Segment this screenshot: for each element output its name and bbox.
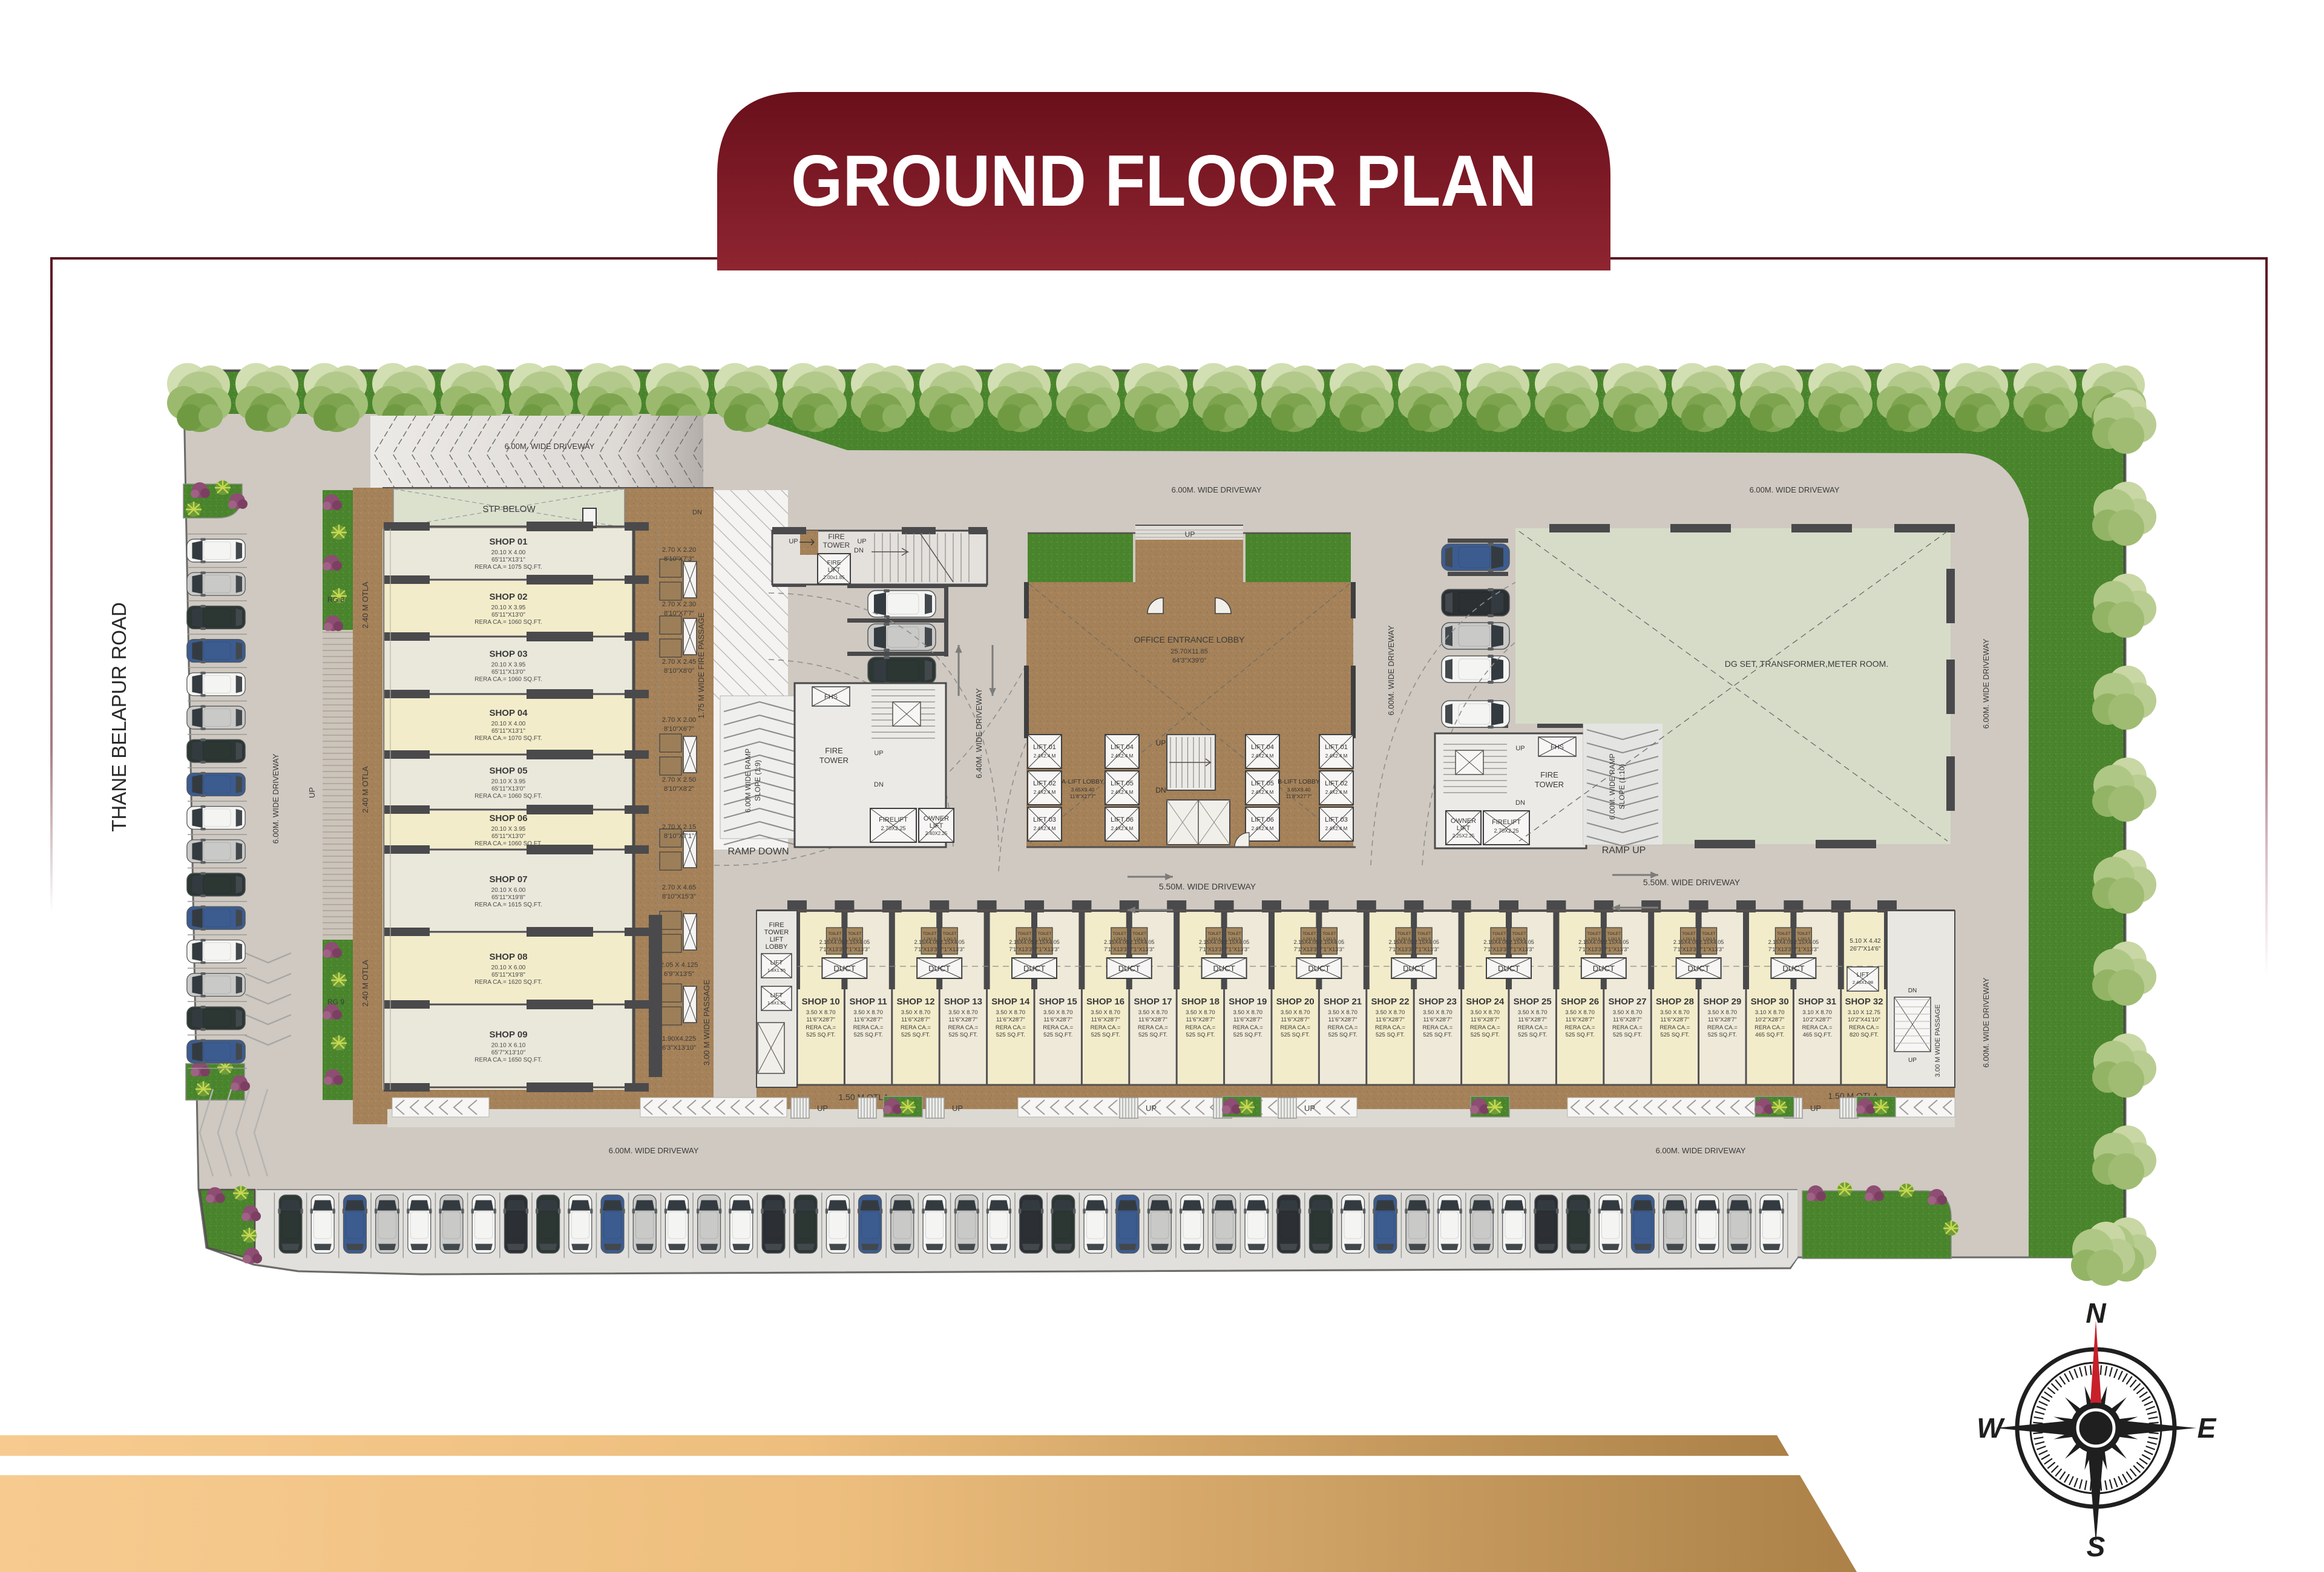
svg-text:3.10 X 8.70: 3.10 X 8.70 xyxy=(1802,1009,1832,1016)
svg-text:TOILET: TOILET xyxy=(1132,932,1146,936)
svg-text:6.00M. WIDE DRIVEWAY: 6.00M. WIDE DRIVEWAY xyxy=(271,753,280,843)
svg-text:LIFT: LIFT xyxy=(828,567,841,574)
svg-text:RERA CA.=: RERA CA.= xyxy=(1565,1024,1595,1031)
svg-text:525 SQ.FT.: 525 SQ.FT. xyxy=(1613,1032,1642,1038)
svg-text:LIFT 03: LIFT 03 xyxy=(1325,816,1348,824)
svg-text:11'6"X28'7": 11'6"X28'7" xyxy=(901,1017,930,1023)
svg-text:2.4X2.4 M: 2.4X2.4 M xyxy=(1111,753,1134,759)
svg-text:UP: UP xyxy=(1156,739,1166,747)
svg-text:2.15X4.05: 2.15X4.05 xyxy=(1794,939,1819,945)
svg-text:SHOP 15: SHOP 15 xyxy=(1039,997,1077,1007)
svg-text:RAMP DOWN: RAMP DOWN xyxy=(727,847,789,857)
svg-text:RERA CA.= 1070 SQ.FT.: RERA CA.= 1070 SQ.FT. xyxy=(474,735,542,742)
svg-text:TOWER: TOWER xyxy=(819,756,849,765)
svg-text:7'1"X13'3": 7'1"X13'3" xyxy=(1389,946,1414,952)
svg-text:LIFT: LIFT xyxy=(770,960,783,966)
svg-text:20.10 X 6.10: 20.10 X 6.10 xyxy=(491,1043,526,1049)
svg-text:TOWER: TOWER xyxy=(1535,780,1564,789)
svg-text:2.15X4.05: 2.15X4.05 xyxy=(1673,939,1698,945)
svg-text:3.50 X 8.70: 3.50 X 8.70 xyxy=(1281,1009,1310,1016)
svg-text:DUCT: DUCT xyxy=(1403,964,1425,973)
svg-text:6.00M. WIDE DRIVEWAY: 6.00M. WIDE DRIVEWAY xyxy=(609,1146,699,1155)
svg-text:SHOP 12: SHOP 12 xyxy=(896,997,934,1007)
svg-text:2.4X2.4 M: 2.4X2.4 M xyxy=(1325,753,1348,759)
svg-text:TOILET: TOILET xyxy=(923,932,937,936)
svg-text:11'6"X28'7": 11'6"X28'7" xyxy=(1376,1017,1405,1023)
svg-text:LIFT 06: LIFT 06 xyxy=(1251,816,1274,824)
svg-text:6.00M. WIDE DRIVEWAY: 6.00M. WIDE DRIVEWAY xyxy=(1387,625,1396,715)
svg-text:LIFT 02: LIFT 02 xyxy=(1325,780,1348,787)
svg-text:2.40 M OTLA: 2.40 M OTLA xyxy=(361,960,370,1007)
svg-text:525 SQ.FT.: 525 SQ.FT. xyxy=(901,1032,930,1038)
svg-text:6.00M. WIDE DRIVEWAY: 6.00M. WIDE DRIVEWAY xyxy=(1656,1146,1746,1155)
svg-text:TOILET: TOILET xyxy=(1682,932,1696,936)
svg-text:LOBBY: LOBBY xyxy=(766,943,788,951)
svg-text:LIFT 05: LIFT 05 xyxy=(1251,780,1274,787)
svg-text:11'6"X28'7": 11'6"X28'7" xyxy=(996,1017,1025,1023)
svg-text:8'10"X7'3": 8'10"X7'3" xyxy=(664,555,694,563)
svg-text:11'6"X28'7": 11'6"X28'7" xyxy=(806,1017,835,1023)
svg-text:2.15X4.05: 2.15X4.05 xyxy=(1035,939,1060,945)
svg-text:UP: UP xyxy=(1304,1104,1315,1113)
svg-text:2.15X4.05: 2.15X4.05 xyxy=(1604,939,1629,945)
svg-text:SHOP 19: SHOP 19 xyxy=(1229,997,1267,1007)
svg-text:7'1"X13'3": 7'1"X13'3" xyxy=(1199,946,1224,952)
svg-text:7'1"X13'3": 7'1"X13'3" xyxy=(845,946,870,952)
svg-text:LIFT: LIFT xyxy=(770,936,784,943)
svg-text:2.15X4.05: 2.15X4.05 xyxy=(914,939,939,945)
svg-text:RERA CA.=: RERA CA.= xyxy=(1091,1024,1121,1031)
svg-text:525 SQ.FT.: 525 SQ.FT. xyxy=(806,1032,835,1038)
svg-text:3.50 X 8.70: 3.50 X 8.70 xyxy=(1518,1009,1548,1016)
svg-text:DN: DN xyxy=(1155,786,1166,794)
svg-text:TOILET: TOILET xyxy=(1587,932,1601,936)
svg-text:525 SQ.FT.: 525 SQ.FT. xyxy=(948,1032,977,1038)
svg-text:DUCT: DUCT xyxy=(1308,964,1330,973)
svg-text:RERA CA.= 1060 SQ.FT.: RERA CA.= 1060 SQ.FT. xyxy=(474,676,542,683)
svg-text:525 SQ.FT.: 525 SQ.FT. xyxy=(1376,1032,1405,1038)
svg-text:2.4X2.4 M: 2.4X2.4 M xyxy=(1111,826,1134,831)
svg-text:3.10 X 12.75: 3.10 X 12.75 xyxy=(1848,1009,1880,1016)
svg-text:RERA CA.=: RERA CA.= xyxy=(1470,1024,1500,1031)
svg-text:DN: DN xyxy=(1908,987,1917,994)
svg-text:11'6"X28'7": 11'6"X28'7" xyxy=(1661,1017,1690,1023)
svg-text:RERA CA.=: RERA CA.= xyxy=(948,1024,978,1031)
svg-text:20.10 X 4.00: 20.10 X 4.00 xyxy=(491,721,526,727)
svg-text:7'1"X13'3": 7'1"X13'3" xyxy=(819,946,844,952)
svg-text:3.50 X 8.70: 3.50 X 8.70 xyxy=(1138,1009,1168,1016)
svg-text:2.70 X 2.15: 2.70 X 2.15 xyxy=(662,824,696,831)
svg-text:3.50 X 8.70: 3.50 X 8.70 xyxy=(901,1009,931,1016)
svg-text:7'1"X13'3": 7'1"X13'3" xyxy=(1035,946,1060,952)
svg-text:7'1"X13'3": 7'1"X13'3" xyxy=(1483,946,1508,952)
svg-text:TOILET: TOILET xyxy=(1227,932,1241,936)
svg-text:11'6"X28'7": 11'6"X28'7" xyxy=(1613,1017,1642,1023)
svg-text:2.40X2.25: 2.40X2.25 xyxy=(925,831,948,836)
svg-text:UP: UP xyxy=(789,538,798,545)
svg-text:1.8X1.95: 1.8X1.95 xyxy=(767,968,786,973)
svg-text:7'1"X13'3": 7'1"X13'3" xyxy=(1604,946,1629,952)
svg-text:7'1"X13'3": 7'1"X13'3" xyxy=(1673,946,1698,952)
svg-text:RERA CA.=: RERA CA.= xyxy=(806,1024,836,1031)
svg-text:2.70 X 2.00: 2.70 X 2.00 xyxy=(662,716,696,724)
svg-text:RERA CA.=: RERA CA.= xyxy=(1422,1024,1452,1031)
svg-text:UP: UP xyxy=(1146,1104,1157,1113)
svg-text:UP: UP xyxy=(1810,1104,1821,1113)
svg-text:LIFT: LIFT xyxy=(930,822,944,830)
svg-text:2.40 M OTLA: 2.40 M OTLA xyxy=(361,766,370,813)
svg-text:11'6"X28'7": 11'6"X28'7" xyxy=(1091,1017,1120,1023)
svg-text:11'6"X28'7": 11'6"X28'7" xyxy=(1233,1017,1262,1023)
svg-text:3.50 X 8.70: 3.50 X 8.70 xyxy=(1613,1009,1643,1016)
svg-text:DUCT: DUCT xyxy=(1688,964,1710,973)
svg-text:525 SQ.FT.: 525 SQ.FT. xyxy=(1043,1032,1072,1038)
svg-text:7'1"X13'3": 7'1"X13'3" xyxy=(1104,946,1129,952)
svg-text:6.00M. WIDE DRIVEWAY: 6.00M. WIDE DRIVEWAY xyxy=(505,442,595,451)
svg-text:RG 8: RG 8 xyxy=(327,595,344,604)
svg-text:RERA CA.=: RERA CA.= xyxy=(1280,1024,1310,1031)
svg-text:TOILET: TOILET xyxy=(1302,932,1316,936)
svg-text:DN: DN xyxy=(1515,799,1525,807)
svg-text:DUCT: DUCT xyxy=(1782,964,1804,973)
svg-text:DN: DN xyxy=(692,509,702,516)
svg-text:525 SQ.FT.: 525 SQ.FT. xyxy=(1091,1032,1120,1038)
svg-text:FIRE: FIRE xyxy=(1540,770,1558,779)
svg-text:7'1"X13'3": 7'1"X13'3" xyxy=(1794,946,1819,952)
svg-text:RERA CA.= 1620 SQ.FT.: RERA CA.= 1620 SQ.FT. xyxy=(474,979,542,986)
svg-text:2.15X4.05: 2.15X4.05 xyxy=(1699,939,1724,945)
svg-text:65'11"X13'0": 65'11"X13'0" xyxy=(491,669,525,676)
svg-text:20.10 X 6.00: 20.10 X 6.00 xyxy=(491,887,526,894)
svg-text:FHS: FHS xyxy=(1551,744,1564,751)
svg-text:3.65X9.40: 3.65X9.40 xyxy=(1071,787,1095,793)
svg-text:LIFT 01: LIFT 01 xyxy=(1033,744,1056,751)
svg-text:RERA CA.=: RERA CA.= xyxy=(1138,1024,1168,1031)
svg-text:3.50 X 8.70: 3.50 X 8.70 xyxy=(1328,1009,1357,1016)
svg-text:7'1"X13'3": 7'1"X13'3" xyxy=(1130,946,1155,952)
svg-text:TOILET: TOILET xyxy=(1397,932,1411,936)
svg-text:20.10 X 6.00: 20.10 X 6.00 xyxy=(491,964,526,971)
svg-text:OFFICE ENTRANCE LOBBY: OFFICE ENTRANCE LOBBY xyxy=(1134,635,1245,644)
svg-text:TOILET: TOILET xyxy=(1322,932,1336,936)
svg-text:RERA CA.=: RERA CA.= xyxy=(1707,1024,1738,1031)
svg-text:3.50 X 8.70: 3.50 X 8.70 xyxy=(1470,1009,1500,1016)
svg-text:7'1"X13'3": 7'1"X13'3" xyxy=(1699,946,1724,952)
svg-text:RERA CA.=: RERA CA.= xyxy=(996,1024,1026,1031)
svg-text:525 SQ.FT.: 525 SQ.FT. xyxy=(1281,1032,1310,1038)
svg-text:11'6"X28'7": 11'6"X28'7" xyxy=(1186,1017,1215,1023)
svg-text:RG 9: RG 9 xyxy=(327,998,344,1006)
svg-text:20.10 X 4.00: 20.10 X 4.00 xyxy=(491,549,526,556)
svg-text:TOWER: TOWER xyxy=(764,929,789,936)
svg-text:2.4X2.4 M: 2.4X2.4 M xyxy=(1034,753,1056,759)
svg-text:DUCT: DUCT xyxy=(1498,964,1520,973)
svg-text:DG SET, TRANSFORMER,METER ROOM: DG SET, TRANSFORMER,METER ROOM. xyxy=(1725,659,1888,669)
svg-text:RERA CA.=: RERA CA.= xyxy=(1328,1024,1358,1031)
svg-text:10'2"X28'7": 10'2"X28'7" xyxy=(1755,1017,1784,1023)
svg-text:SHOP 03: SHOP 03 xyxy=(489,649,527,660)
svg-text:TOILET: TOILET xyxy=(1207,932,1221,936)
svg-text:525 SQ.FT.: 525 SQ.FT. xyxy=(1423,1032,1452,1038)
svg-text:3.50 X 8.70: 3.50 X 8.70 xyxy=(1565,1009,1595,1016)
svg-text:3.50 X 8.70: 3.50 X 8.70 xyxy=(1376,1009,1405,1016)
svg-text:2.4X2.4 M: 2.4X2.4 M xyxy=(1252,790,1274,795)
svg-text:2.4X2.4 M: 2.4X2.4 M xyxy=(1252,826,1274,831)
svg-text:2.70 X 2.30: 2.70 X 2.30 xyxy=(662,601,696,608)
svg-text:65'7"X13'10": 65'7"X13'10" xyxy=(491,1050,526,1056)
svg-text:2.15X4.05: 2.15X4.05 xyxy=(1578,939,1603,945)
svg-text:3.50 X 8.70: 3.50 X 8.70 xyxy=(1233,1009,1262,1016)
svg-text:465 SQ.FT.: 465 SQ.FT. xyxy=(1755,1032,1784,1038)
svg-text:525 SQ.FT.: 525 SQ.FT. xyxy=(1518,1032,1547,1038)
svg-text:525 SQ.FT.: 525 SQ.FT. xyxy=(1660,1032,1689,1038)
svg-text:LIFT: LIFT xyxy=(770,992,783,999)
svg-text:525 SQ.FT.: 525 SQ.FT. xyxy=(854,1032,883,1038)
svg-text:UP: UP xyxy=(1185,530,1195,539)
svg-text:11'6"X28'7": 11'6"X28'7" xyxy=(1708,1017,1737,1023)
svg-text:SHOP 18: SHOP 18 xyxy=(1181,997,1219,1007)
svg-text:TOILET: TOILET xyxy=(1512,932,1526,936)
svg-text:7'1"X13'3": 7'1"X13'3" xyxy=(1009,946,1034,952)
svg-text:11'6"X28'7": 11'6"X28'7" xyxy=(1518,1017,1547,1023)
svg-text:6.40M. WIDE DRIVEWAY: 6.40M. WIDE DRIVEWAY xyxy=(974,688,983,778)
svg-text:2.15X4.05: 2.15X4.05 xyxy=(1483,939,1508,945)
svg-text:2.40 M OTLA: 2.40 M OTLA xyxy=(361,581,370,629)
svg-text:2.05 X 4.125: 2.05 X 4.125 xyxy=(660,961,698,969)
svg-text:11'6"X28'7": 11'6"X28'7" xyxy=(1281,1017,1310,1023)
svg-text:2.15X4.05: 2.15X4.05 xyxy=(1509,939,1534,945)
svg-text:TOILET: TOILET xyxy=(1607,932,1621,936)
svg-text:5.10 X 4.42: 5.10 X 4.42 xyxy=(1850,938,1881,945)
svg-text:64'3"X39'0": 64'3"X39'0" xyxy=(1172,657,1206,664)
svg-text:SHOP 05: SHOP 05 xyxy=(489,766,527,776)
svg-text:525 SQ.FT.: 525 SQ.FT. xyxy=(1566,1032,1595,1038)
svg-text:FHS: FHS xyxy=(824,693,838,701)
svg-text:TOILET: TOILET xyxy=(828,932,842,936)
svg-text:6'9"X13'5": 6'9"X13'5" xyxy=(664,971,694,978)
svg-text:RAMP UP: RAMP UP xyxy=(1602,845,1646,856)
svg-text:RERA CA.=: RERA CA.= xyxy=(1233,1024,1263,1031)
svg-text:65'11"X19'8": 65'11"X19'8" xyxy=(491,972,525,978)
svg-text:TOILET: TOILET xyxy=(1492,932,1506,936)
svg-text:2.15X4.05: 2.15X4.05 xyxy=(819,939,844,945)
svg-text:GROUND FLOOR PLAN: GROUND FLOOR PLAN xyxy=(791,140,1537,221)
svg-text:1.8X1.95: 1.8X1.95 xyxy=(767,1000,786,1006)
svg-text:TOILET: TOILET xyxy=(1417,932,1431,936)
svg-text:525 SQ.FT.: 525 SQ.FT. xyxy=(1186,1032,1215,1038)
svg-text:SHOP 11: SHOP 11 xyxy=(849,997,887,1007)
svg-text:65'11"X19'8": 65'11"X19'8" xyxy=(491,894,525,901)
svg-text:2.15X4.05: 2.15X4.05 xyxy=(940,939,965,945)
svg-text:SHOP 13: SHOP 13 xyxy=(944,997,982,1007)
svg-text:820 SQ.FT.: 820 SQ.FT. xyxy=(1850,1032,1879,1038)
svg-text:11'6"X28'7": 11'6"X28'7" xyxy=(1423,1017,1452,1023)
svg-text:TOILET: TOILET xyxy=(1038,932,1052,936)
svg-text:6.00M WIDE RAMP: 6.00M WIDE RAMP xyxy=(744,748,752,813)
svg-text:2.4X2.4 M: 2.4X2.4 M xyxy=(1034,826,1056,831)
svg-text:RERA CA.= 1075 SQ.FT.: RERA CA.= 1075 SQ.FT. xyxy=(474,564,542,571)
svg-text:FIRE: FIRE xyxy=(828,532,844,541)
svg-text:2.4X2.4 M: 2.4X2.4 M xyxy=(1252,753,1274,759)
svg-text:E: E xyxy=(2198,1412,2217,1444)
svg-text:SHOP 28: SHOP 28 xyxy=(1656,997,1694,1007)
svg-text:RERA CA.=: RERA CA.= xyxy=(1612,1024,1643,1031)
svg-text:525 SQ.FT.: 525 SQ.FT. xyxy=(1138,1032,1167,1038)
svg-text:25.70X11.85: 25.70X11.85 xyxy=(1170,648,1208,655)
svg-text:DUCT: DUCT xyxy=(1593,964,1615,973)
svg-text:SHOP 29: SHOP 29 xyxy=(1703,997,1741,1007)
svg-text:6.00M. WIDE RAMP: 6.00M. WIDE RAMP xyxy=(1608,753,1617,819)
svg-text:A-LIFT LOBBY: A-LIFT LOBBY xyxy=(1062,778,1104,785)
svg-text:UP: UP xyxy=(1515,745,1525,752)
svg-text:SLOPE (1:9): SLOPE (1:9) xyxy=(753,760,762,801)
svg-text:LIFT 04: LIFT 04 xyxy=(1251,744,1274,751)
svg-text:2.25X2.25: 2.25X2.25 xyxy=(1452,833,1475,839)
svg-text:SHOP 04: SHOP 04 xyxy=(489,708,528,718)
svg-text:SHOP 23: SHOP 23 xyxy=(1419,997,1457,1007)
svg-text:RERA CA.= 1650 SQ.FT.: RERA CA.= 1650 SQ.FT. xyxy=(474,1057,542,1064)
svg-text:8'10"X7'7": 8'10"X7'7" xyxy=(664,610,694,617)
svg-text:UP: UP xyxy=(307,787,317,798)
svg-text:7'1"X13'3": 7'1"X13'3" xyxy=(1224,946,1249,952)
svg-text:11'6"X28'7": 11'6"X28'7" xyxy=(1138,1017,1167,1023)
svg-text:7'1"X13'3": 7'1"X13'3" xyxy=(1414,946,1439,952)
svg-text:525 SQ.FT.: 525 SQ.FT. xyxy=(1328,1032,1357,1038)
svg-text:SHOP 21: SHOP 21 xyxy=(1324,997,1362,1007)
svg-text:SHOP 06: SHOP 06 xyxy=(489,813,527,824)
svg-text:RERA CA.=: RERA CA.= xyxy=(1849,1024,1879,1031)
svg-text:11'8"X27'7": 11'8"X27'7" xyxy=(1070,793,1096,799)
svg-text:3.50 X 8.70: 3.50 X 8.70 xyxy=(948,1009,978,1016)
svg-text:6'3"X13'10": 6'3"X13'10" xyxy=(662,1044,696,1052)
svg-text:11'6"X28'7": 11'6"X28'7" xyxy=(1471,1017,1500,1023)
svg-text:7'1"X13'3": 7'1"X13'3" xyxy=(1578,946,1603,952)
svg-text:SHOP 20: SHOP 20 xyxy=(1276,997,1315,1007)
svg-text:20.10 X 3.95: 20.10 X 3.95 xyxy=(491,662,526,669)
svg-text:N: N xyxy=(2086,1297,2106,1329)
svg-text:2.4X2.4 M: 2.4X2.4 M xyxy=(1034,790,1056,795)
svg-text:UP: UP xyxy=(1908,1057,1917,1064)
svg-text:3.10 X 8.70: 3.10 X 8.70 xyxy=(1755,1009,1785,1016)
svg-text:LIFT 05: LIFT 05 xyxy=(1111,780,1134,787)
svg-text:2.46X1.98: 2.46X1.98 xyxy=(1853,980,1873,985)
svg-text:FIRELIFT: FIRELIFT xyxy=(1492,819,1521,826)
svg-text:3.50 X 8.70: 3.50 X 8.70 xyxy=(806,1009,836,1016)
svg-text:SHOP 10: SHOP 10 xyxy=(802,997,840,1007)
svg-text:2.15X4.05: 2.15X4.05 xyxy=(1199,939,1224,945)
svg-text:LIFT 04: LIFT 04 xyxy=(1111,744,1134,751)
svg-text:2.15X4.05: 2.15X4.05 xyxy=(1768,939,1793,945)
svg-text:RERA CA.=: RERA CA.= xyxy=(853,1024,884,1031)
svg-text:SHOP 26: SHOP 26 xyxy=(1561,997,1599,1007)
svg-text:DN: DN xyxy=(854,547,864,554)
svg-text:3.00 M WIDE PASSAGE: 3.00 M WIDE PASSAGE xyxy=(1934,1004,1942,1077)
svg-text:3.50 X 8.70: 3.50 X 8.70 xyxy=(1186,1009,1215,1016)
svg-text:20.10 X 3.95: 20.10 X 3.95 xyxy=(491,604,526,611)
svg-text:2.4X2.4 M: 2.4X2.4 M xyxy=(1111,790,1134,795)
svg-text:RERA CA.= 1615 SQ.FT.: RERA CA.= 1615 SQ.FT. xyxy=(474,902,542,908)
svg-text:2.70 X 4.65: 2.70 X 4.65 xyxy=(662,884,696,891)
svg-text:465 SQ.FT.: 465 SQ.FT. xyxy=(1803,1032,1832,1038)
svg-text:2.15X4.05: 2.15X4.05 xyxy=(1224,939,1249,945)
svg-text:3.50 X 8.70: 3.50 X 8.70 xyxy=(1091,1009,1120,1016)
svg-text:RERA CA.=: RERA CA.= xyxy=(1185,1024,1215,1031)
svg-text:LIFT: LIFT xyxy=(1457,825,1471,832)
svg-text:RERA CA.=: RERA CA.= xyxy=(1659,1024,1690,1031)
svg-text:RERA CA.=: RERA CA.= xyxy=(1375,1024,1405,1031)
svg-text:SHOP 09: SHOP 09 xyxy=(489,1030,527,1040)
svg-text:65'11"X13'0": 65'11"X13'0" xyxy=(491,786,525,793)
svg-text:LIFT 02: LIFT 02 xyxy=(1033,780,1056,787)
svg-text:TOILET: TOILET xyxy=(1112,932,1126,936)
svg-text:2.70X2.25: 2.70X2.25 xyxy=(881,825,905,831)
svg-text:DN: DN xyxy=(874,781,884,788)
svg-text:TOILET: TOILET xyxy=(1018,932,1032,936)
svg-text:DUCT: DUCT xyxy=(928,964,950,973)
svg-text:SHOP 07: SHOP 07 xyxy=(489,874,527,885)
svg-text:SHOP 08: SHOP 08 xyxy=(489,952,527,962)
svg-text:OWNER: OWNER xyxy=(1451,817,1476,825)
svg-text:TOILET: TOILET xyxy=(1702,932,1716,936)
svg-text:UP: UP xyxy=(874,750,883,757)
svg-text:THANE BELAPUR ROAD: THANE BELAPUR ROAD xyxy=(108,602,130,832)
svg-text:2.70 X 2.20: 2.70 X 2.20 xyxy=(662,546,696,554)
svg-text:FIRE: FIRE xyxy=(769,922,784,929)
svg-text:LIFT: LIFT xyxy=(1857,972,1869,978)
svg-text:7'1"X13'3": 7'1"X13'3" xyxy=(1768,946,1793,952)
svg-text:TOILET: TOILET xyxy=(1777,932,1791,936)
svg-text:STP BELOW: STP BELOW xyxy=(482,504,536,514)
svg-text:SHOP 14: SHOP 14 xyxy=(991,997,1030,1007)
svg-text:SHOP 01: SHOP 01 xyxy=(489,537,527,547)
svg-text:6.00M. WIDE DRIVEWAY: 6.00M. WIDE DRIVEWAY xyxy=(1750,485,1840,494)
svg-text:S: S xyxy=(2087,1531,2106,1562)
svg-text:2.15X4.05: 2.15X4.05 xyxy=(1294,939,1319,945)
svg-text:SHOP 24: SHOP 24 xyxy=(1466,997,1505,1007)
svg-text:20.10 X 3.95: 20.10 X 3.95 xyxy=(491,826,526,833)
svg-text:SHOP 02: SHOP 02 xyxy=(489,592,527,602)
svg-text:RERA CA.= 1060 SQ.FT.: RERA CA.= 1060 SQ.FT. xyxy=(474,793,542,800)
svg-text:65'11"X13'1": 65'11"X13'1" xyxy=(491,728,525,735)
svg-text:TOILET: TOILET xyxy=(848,932,862,936)
svg-text:7'1"X13'3": 7'1"X13'3" xyxy=(1294,946,1319,952)
svg-text:11'6"X28'7": 11'6"X28'7" xyxy=(1043,1017,1072,1023)
svg-text:2.70 X 2.45: 2.70 X 2.45 xyxy=(662,658,696,666)
svg-text:SHOP 16: SHOP 16 xyxy=(1086,997,1124,1007)
svg-text:2.70 X 2.50: 2.70 X 2.50 xyxy=(662,776,696,784)
svg-text:7'1"X13'3": 7'1"X13'3" xyxy=(1509,946,1534,952)
svg-text:DUCT: DUCT xyxy=(833,964,855,973)
svg-text:5.50M. WIDE DRIVEWAY: 5.50M. WIDE DRIVEWAY xyxy=(1643,877,1741,887)
svg-text:FIRE: FIRE xyxy=(827,560,841,566)
svg-text:20.10 X 3.95: 20.10 X 3.95 xyxy=(491,779,526,785)
svg-text:8'10"X8'0": 8'10"X8'0" xyxy=(664,667,694,675)
svg-text:SHOP 30: SHOP 30 xyxy=(1751,997,1789,1007)
svg-text:7'1"X13'3": 7'1"X13'3" xyxy=(940,946,965,952)
svg-text:RERA CA.=: RERA CA.= xyxy=(1517,1024,1548,1031)
svg-text:DUCT: DUCT xyxy=(1213,964,1235,973)
svg-text:3.50 X 8.70: 3.50 X 8.70 xyxy=(1707,1009,1737,1016)
svg-text:1.75 M WIDE FIRE PASSAGE: 1.75 M WIDE FIRE PASSAGE xyxy=(697,612,706,719)
svg-text:1.90X4.225: 1.90X4.225 xyxy=(662,1035,696,1043)
svg-text:SLOPE (1:10): SLOPE (1:10) xyxy=(1618,764,1626,810)
svg-text:8'10"X15'3": 8'10"X15'3" xyxy=(662,893,696,900)
svg-text:SHOP 27: SHOP 27 xyxy=(1608,997,1646,1007)
svg-text:525 SQ.FT.: 525 SQ.FT. xyxy=(996,1032,1025,1038)
svg-text:26'7"X14'6": 26'7"X14'6" xyxy=(1850,946,1881,952)
svg-text:SHOP 31: SHOP 31 xyxy=(1798,997,1836,1007)
svg-text:FIRE: FIRE xyxy=(825,746,843,755)
